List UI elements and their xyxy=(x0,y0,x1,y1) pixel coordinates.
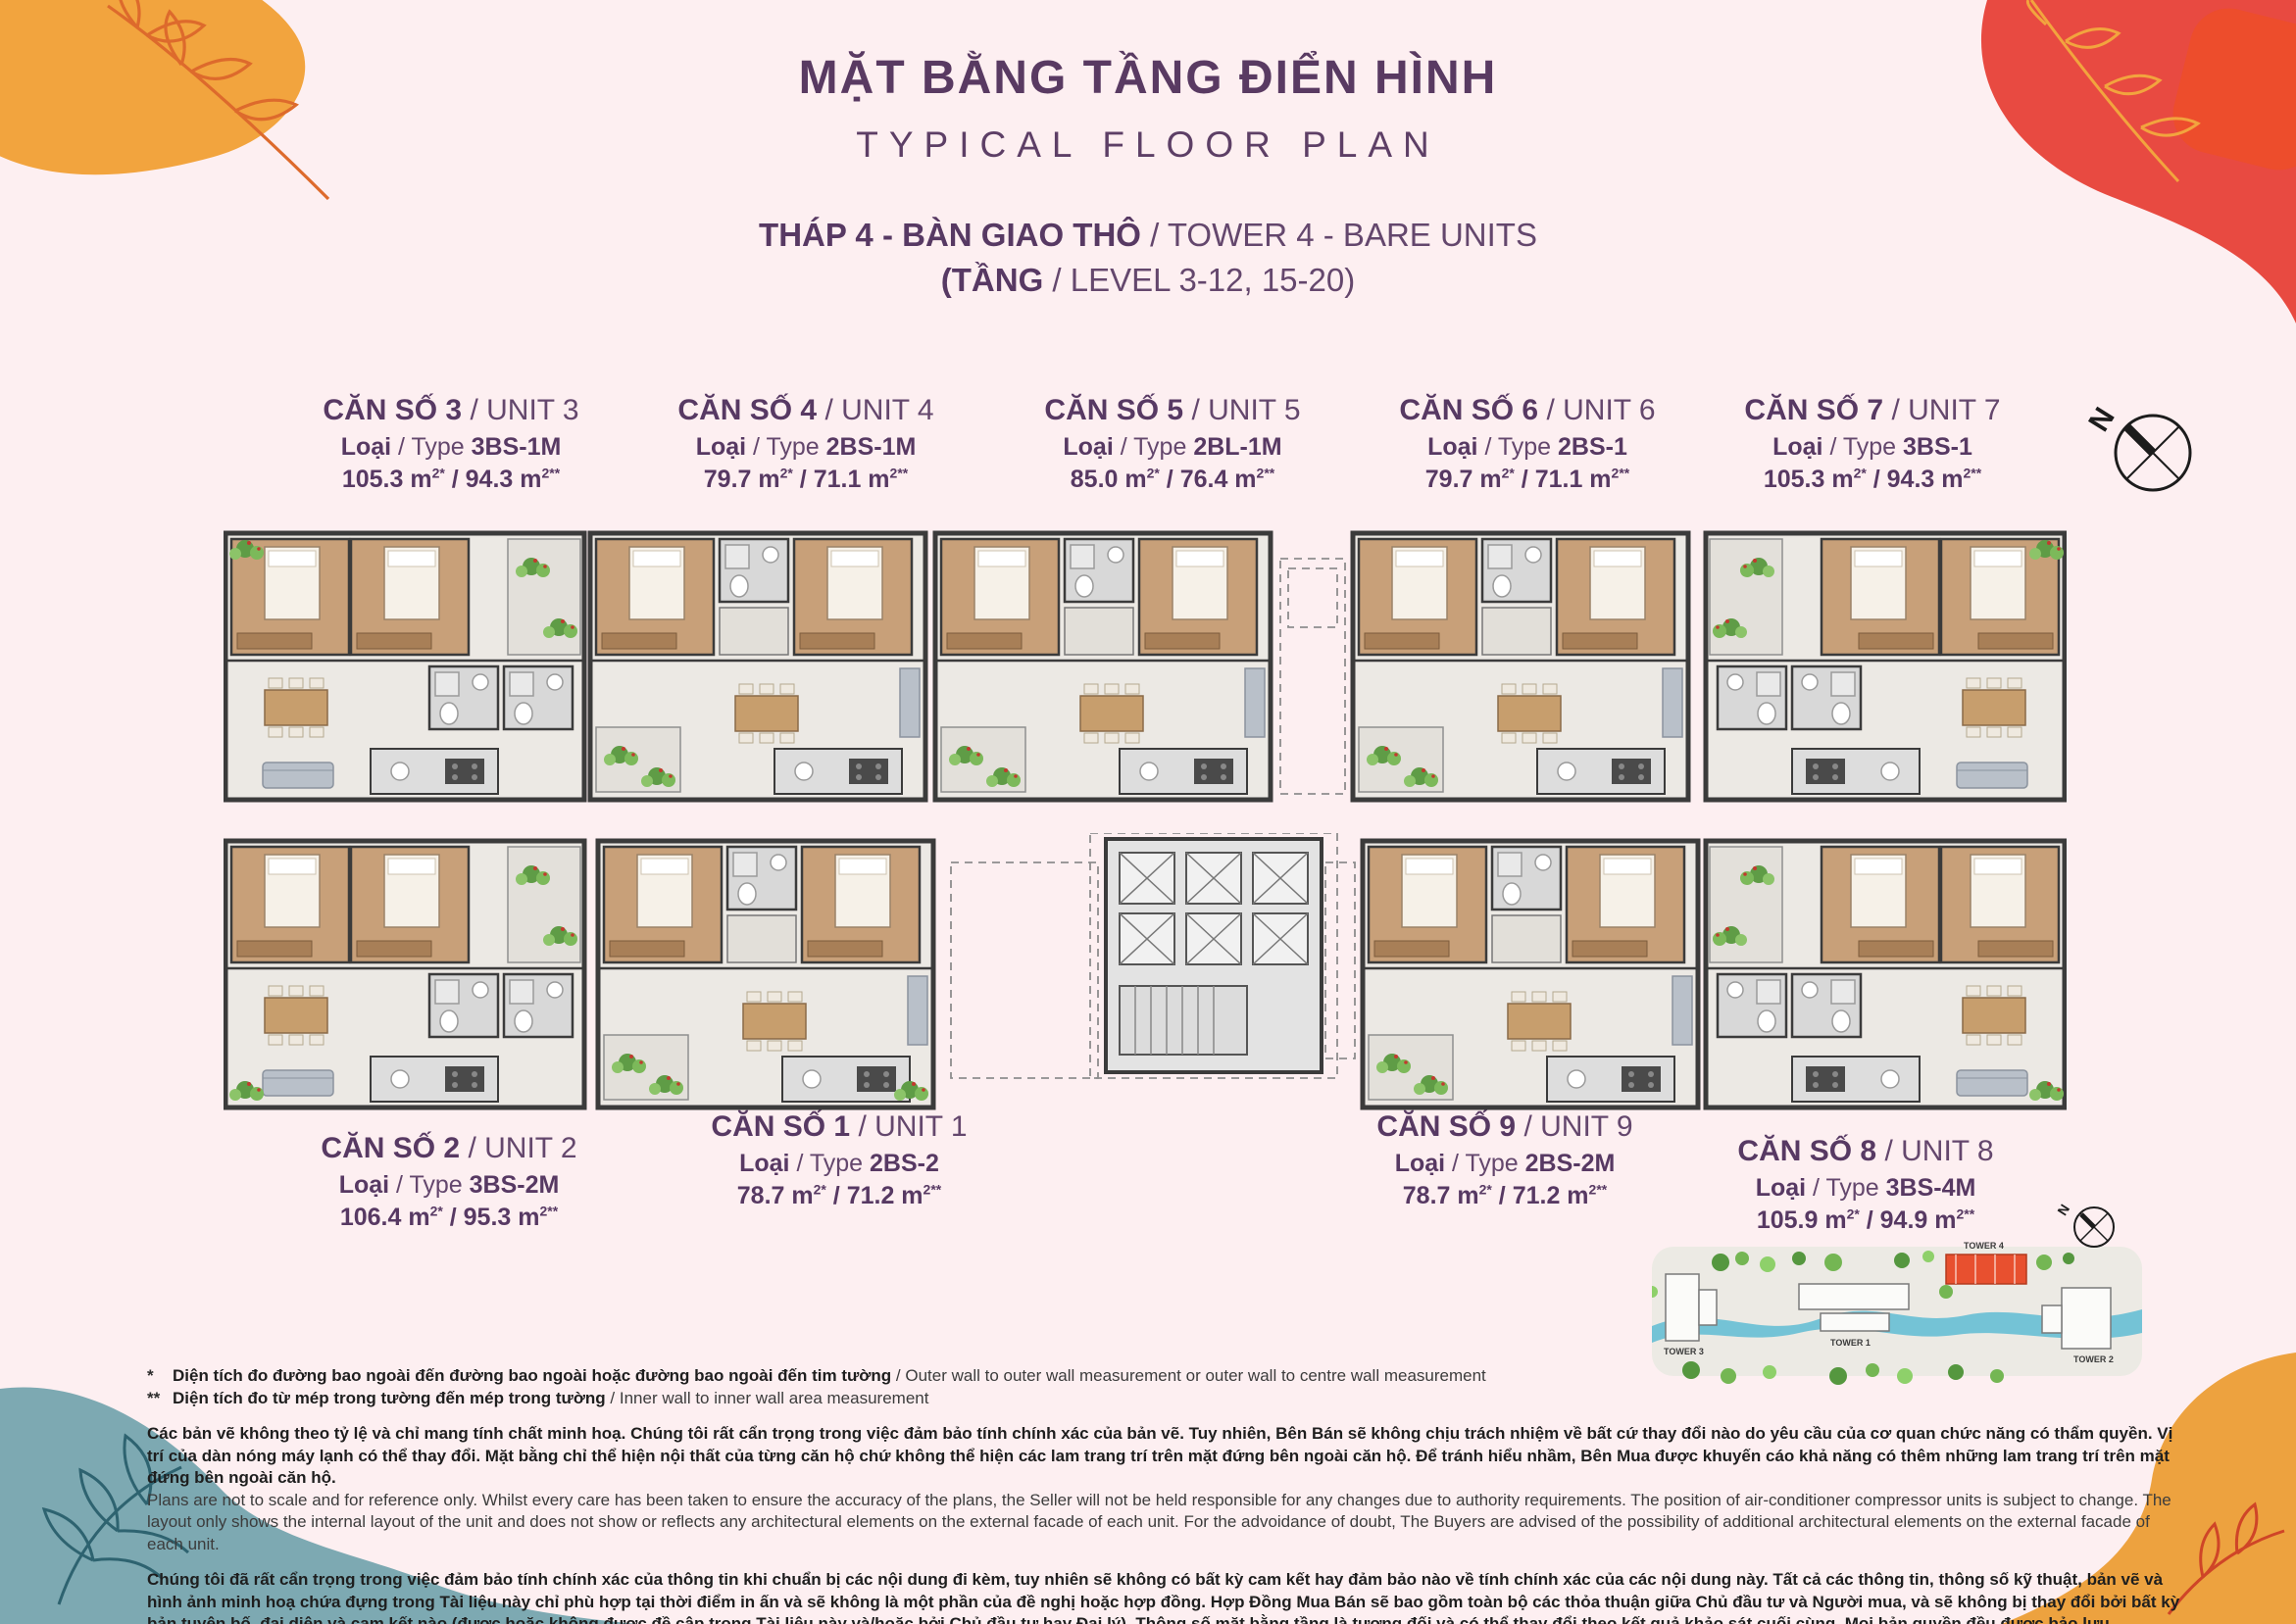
disclaimer-plans: Các bản vẽ không theo tỷ lệ và chỉ mang … xyxy=(147,1423,2186,1555)
header: MẶT BẰNG TẦNG ĐIỂN HÌNH TYPICAL FLOOR PL… xyxy=(0,51,2296,299)
site-label-tower-2: TOWER 2 xyxy=(2073,1354,2114,1364)
disclaimer-plans-english: Plans are not to scale and for reference… xyxy=(147,1490,2186,1556)
site-label-tower-3: TOWER 3 xyxy=(1664,1347,1704,1356)
unit-type: Loại / Type 2BS-2 xyxy=(624,1149,1055,1179)
site-compass-icon: N xyxy=(2055,1192,2123,1260)
footnote-outer-wall: *Diện tích đo đường bao ngoài đến đường … xyxy=(147,1364,2186,1387)
level-subtitle: (TẦNG / LEVEL 3-12, 15-20) xyxy=(0,262,2296,299)
disclaimer-information-vietnamese: Chúng tôi đã rất cẩn trọng trong việc đả… xyxy=(147,1569,2186,1624)
legal-block: *Diện tích đo đường bao ngoài đến đường … xyxy=(147,1364,2186,1624)
elevator-core xyxy=(1090,833,1337,1078)
floor-plan-poster: MẶT BẰNG TẦNG ĐIỂN HÌNH TYPICAL FLOOR PL… xyxy=(0,0,2296,1624)
unit-area: 105.9 m2* / 94.9 m2** xyxy=(1650,1206,2081,1236)
disclaimer-information: Chúng tôi đã rất cẩn trọng trong việc đả… xyxy=(147,1569,2186,1624)
unit-name: CĂN SỐ 7 / UNIT 7 xyxy=(1657,392,2088,429)
floor-plan-bottom-wing xyxy=(224,833,2067,1117)
unit-area: 106.4 m2* / 95.3 m2** xyxy=(233,1203,665,1233)
unit-name: CĂN SỐ 8 / UNIT 8 xyxy=(1650,1133,2081,1170)
unit-type: Loại / Type 3BS-1 xyxy=(1657,432,2088,463)
page-title-english: TYPICAL FLOOR PLAN xyxy=(0,124,2296,166)
unit-type: Loại / Type 3BS-2M xyxy=(233,1170,665,1201)
unit-area: 78.7 m2* / 71.2 m2** xyxy=(624,1181,1055,1211)
unit-type: Loại / Type 3BS-4M xyxy=(1650,1173,2081,1204)
unit-name: CĂN SỐ 2 / UNIT 2 xyxy=(233,1130,665,1167)
floor-plan-top-wing xyxy=(224,510,2067,833)
unit-label-unit-2: CĂN SỐ 2 / UNIT 2 Loại / Type 3BS-2M 106… xyxy=(233,1130,665,1233)
site-label-tower-1: TOWER 1 xyxy=(1830,1338,1871,1348)
unit-name: CĂN SỐ 1 / UNIT 1 xyxy=(624,1108,1055,1146)
compass-icon: N xyxy=(2084,390,2212,517)
unit-area: 105.3 m2* / 94.3 m2** xyxy=(1657,465,2088,495)
unit-label-unit-7: CĂN SỐ 7 / UNIT 7 Loại / Type 3BS-1 105.… xyxy=(1657,392,2088,495)
site-label-tower-4: TOWER 4 xyxy=(1964,1241,2004,1251)
disclaimer-plans-vietnamese: Các bản vẽ không theo tỷ lệ và chỉ mang … xyxy=(147,1423,2186,1490)
unit-label-unit-8: CĂN SỐ 8 / UNIT 8 Loại / Type 3BS-4M 105… xyxy=(1650,1133,2081,1236)
unit-label-unit-1: CĂN SỐ 1 / UNIT 1 Loại / Type 2BS-2 78.7… xyxy=(624,1108,1055,1211)
footnote-inner-wall: **Diện tích đo từ mép trong tường đến mé… xyxy=(147,1387,2186,1409)
tower-subtitle: THÁP 4 - BÀN GIAO THÔ / TOWER 4 - BARE U… xyxy=(0,217,2296,254)
compass-north-label: N xyxy=(2084,402,2121,437)
site-compass-north-label: N xyxy=(2055,1202,2072,1218)
page-title-vietnamese: MẶT BẰNG TẦNG ĐIỂN HÌNH xyxy=(0,51,2296,105)
